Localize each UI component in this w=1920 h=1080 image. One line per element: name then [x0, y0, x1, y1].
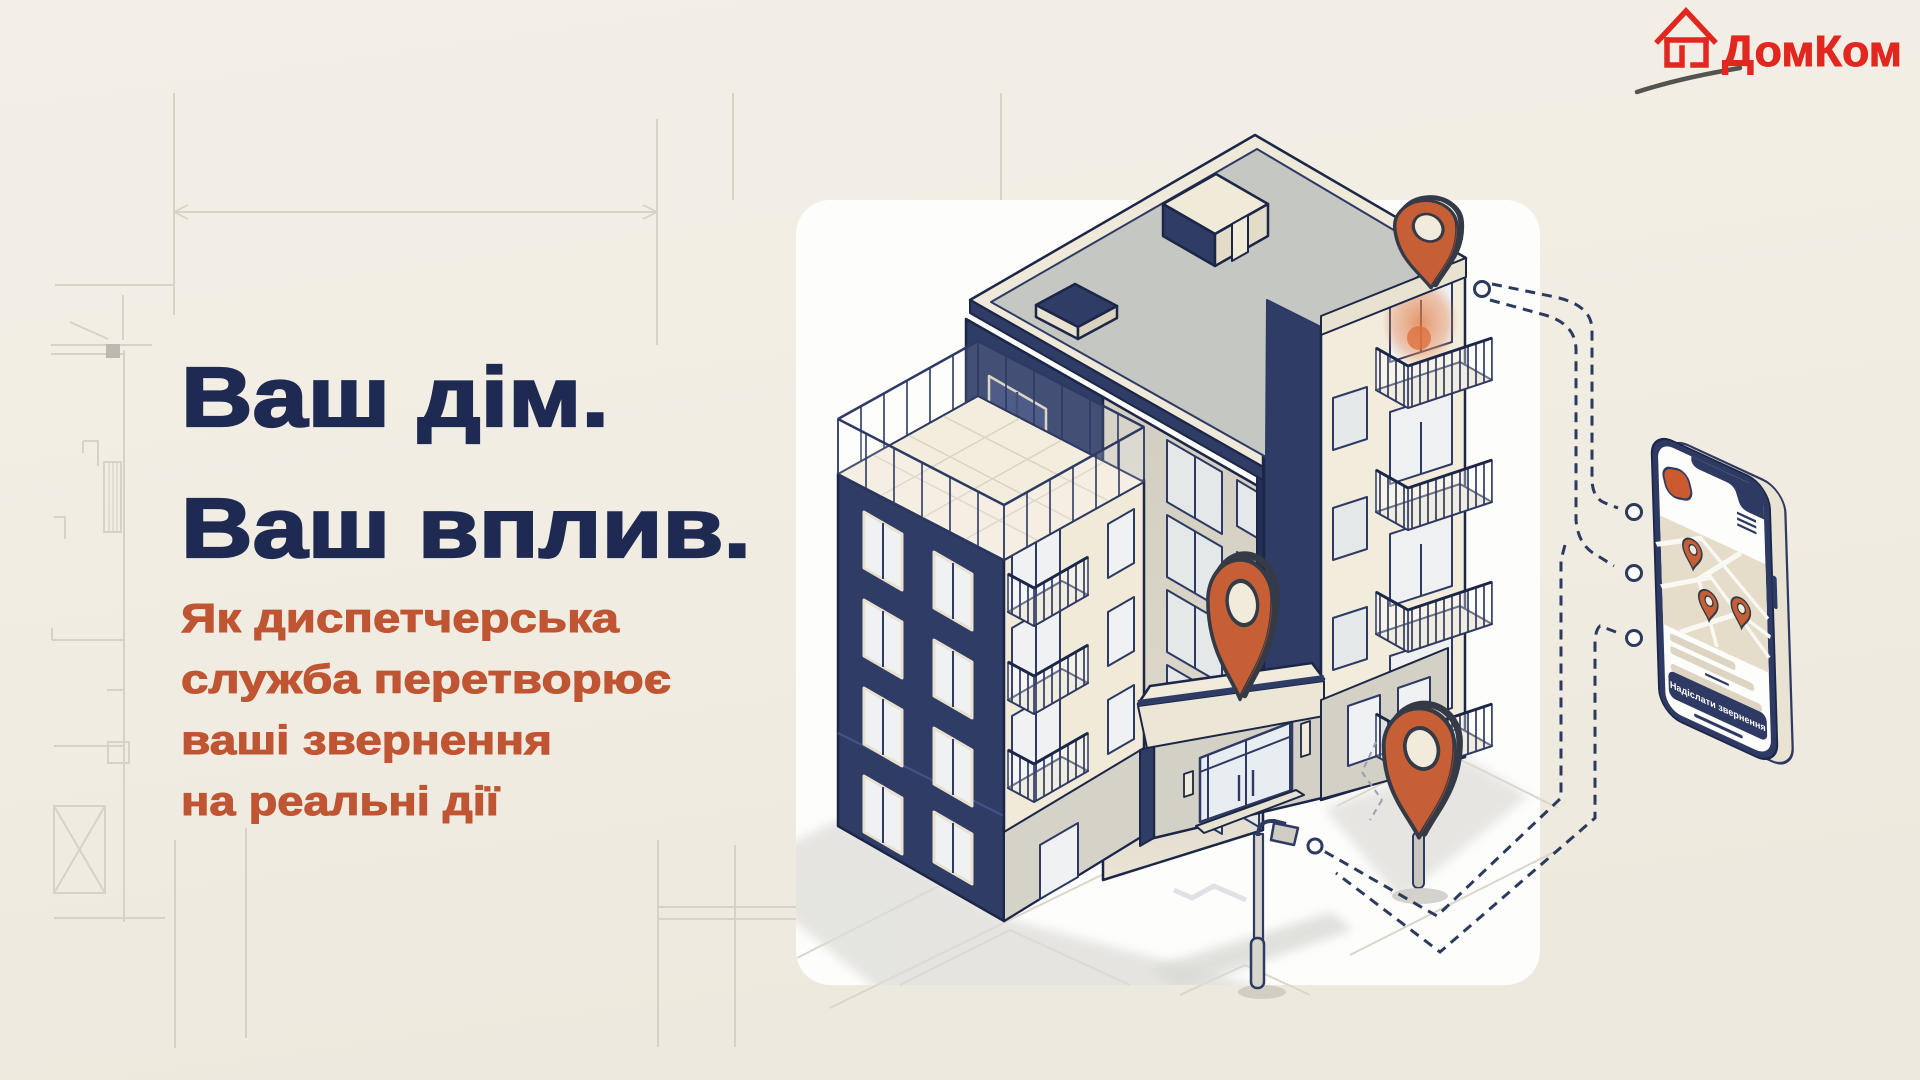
- svg-text:служба перетворює: служба перетворює: [181, 656, 671, 702]
- svg-text:Ваш дім.: Ваш дім.: [181, 350, 609, 444]
- svg-text:ваші звернення: ваші звернення: [181, 717, 552, 763]
- svg-text:Ваш вплив.: Ваш вплив.: [181, 481, 751, 575]
- svg-text:на реальні дії: на реальні дії: [181, 778, 501, 824]
- svg-text:ДомКом: ДомКом: [1722, 27, 1902, 76]
- svg-text:Як диспетчерська: Як диспетчерська: [181, 595, 620, 641]
